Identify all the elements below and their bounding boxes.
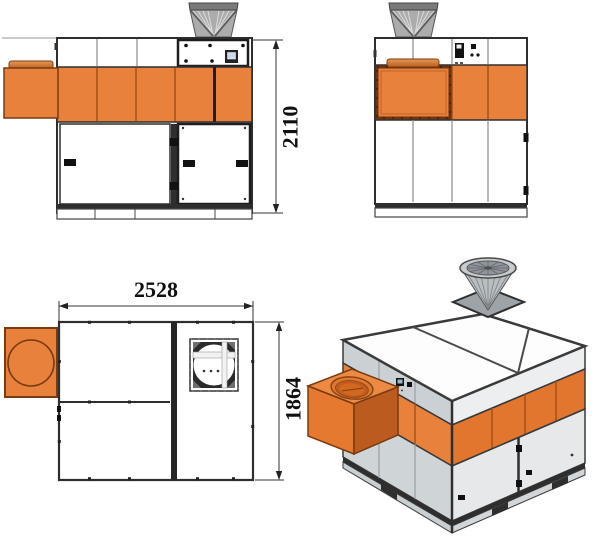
orange-filter-band bbox=[375, 59, 527, 120]
inlet-duct-plan bbox=[5, 328, 57, 397]
isometric-view bbox=[300, 240, 600, 549]
top-view: 2528 bbox=[0, 275, 310, 515]
edge-latch bbox=[55, 43, 58, 50]
height-dimension: 2110 bbox=[253, 40, 303, 213]
exhaust-fan-cowl-icon bbox=[389, 3, 438, 37]
technical-drawing-canvas: 2110 bbox=[0, 0, 600, 549]
hinge bbox=[170, 138, 179, 146]
button bbox=[471, 44, 476, 49]
depth-dimension: 1864 bbox=[255, 322, 306, 480]
hinge bbox=[516, 480, 522, 487]
left-door bbox=[60, 124, 170, 204]
door-handle bbox=[183, 160, 195, 167]
duct-frame bbox=[377, 67, 450, 118]
door-post bbox=[171, 124, 177, 204]
door-handle bbox=[64, 159, 76, 166]
exhaust-fan-cowl-icon bbox=[189, 3, 238, 37]
center-wall bbox=[171, 322, 177, 480]
hinge bbox=[170, 182, 179, 190]
side-view bbox=[345, 0, 545, 232]
hinge bbox=[516, 445, 522, 452]
hinge bbox=[57, 406, 61, 412]
hinge bbox=[524, 186, 529, 195]
edge-latch bbox=[374, 50, 377, 57]
control-panel bbox=[178, 40, 248, 66]
door-handle bbox=[236, 160, 248, 167]
duct-flange bbox=[387, 59, 439, 67]
iso-inlet-duct-box bbox=[308, 369, 398, 454]
roof-fan-plan-detail bbox=[190, 339, 238, 391]
width-dimension-label: 2528 bbox=[134, 277, 178, 302]
hinge bbox=[524, 133, 529, 142]
roof-fan-icon bbox=[453, 258, 524, 317]
front-view: 2110 bbox=[0, 0, 310, 232]
door-handle bbox=[458, 495, 465, 500]
orange-filter-band bbox=[57, 67, 252, 122]
width-dimension: 2528 bbox=[59, 277, 253, 321]
inlet-duct-box bbox=[4, 61, 58, 118]
lower-doors bbox=[60, 124, 250, 204]
base-skid bbox=[375, 204, 527, 217]
hinge bbox=[57, 415, 61, 421]
door-handle bbox=[526, 470, 532, 475]
height-dimension-label: 2110 bbox=[278, 106, 303, 149]
fan-circle bbox=[194, 345, 235, 386]
base-skid bbox=[57, 204, 252, 219]
